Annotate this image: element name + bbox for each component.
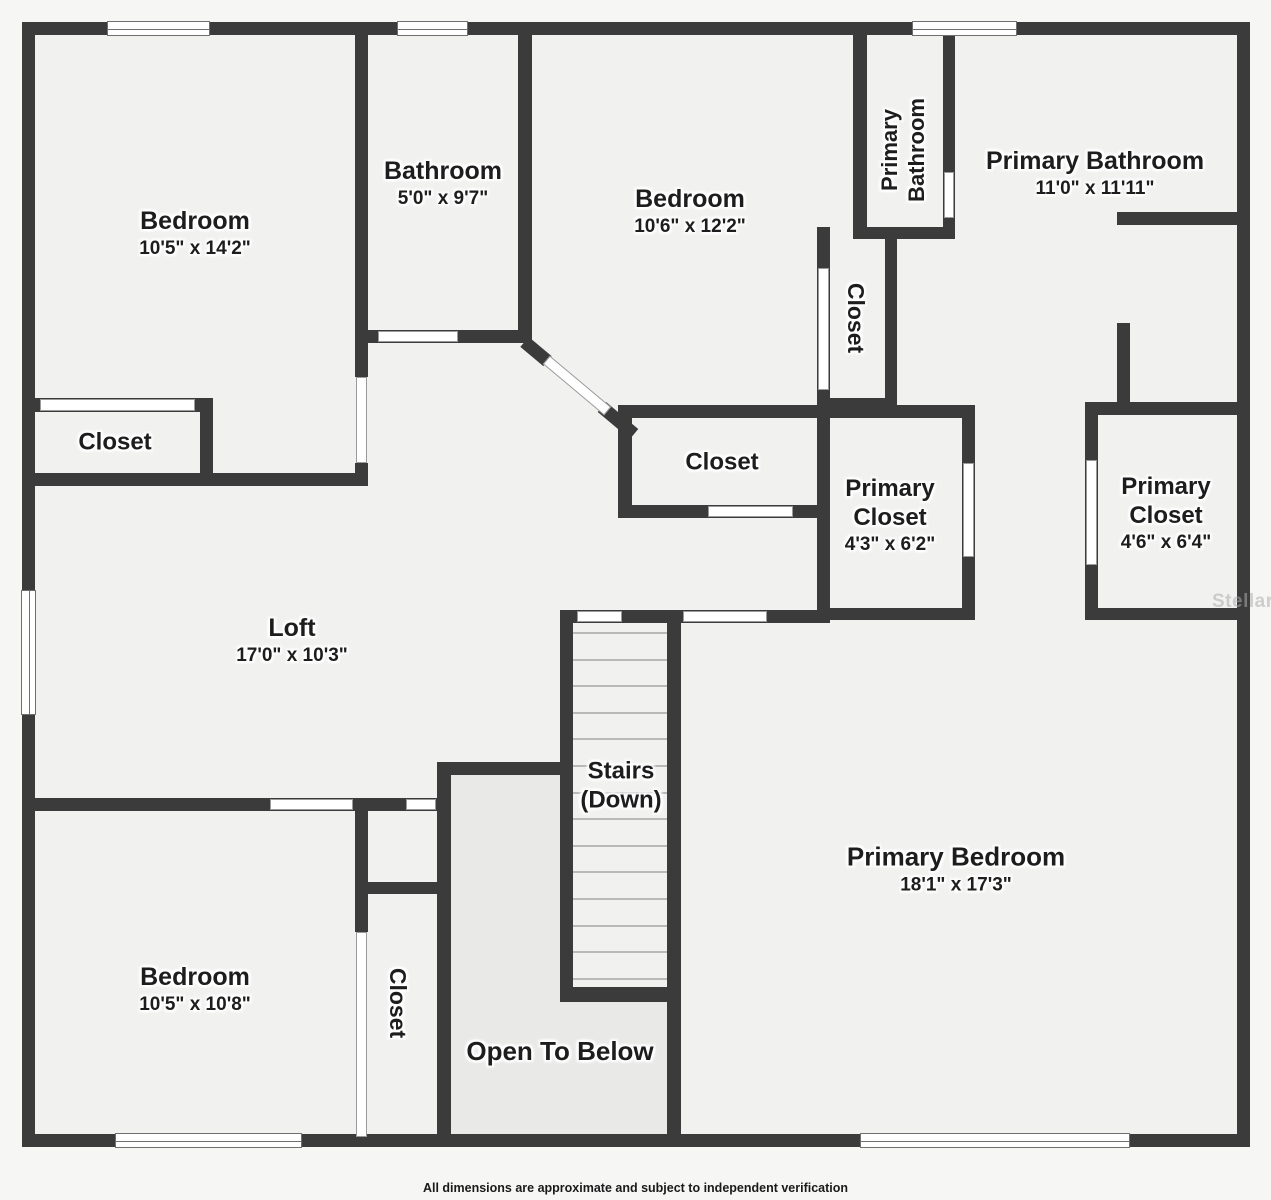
room-label-line: Primary: [845, 474, 935, 503]
wall: [560, 987, 680, 1002]
room-label-line: 10'6" x 12'2": [634, 215, 746, 238]
room-label-open-to-below: Open To Below: [466, 1036, 653, 1068]
room-label-primary-closet-1: PrimaryCloset4'3" x 6'2": [845, 474, 935, 556]
wall: [437, 762, 451, 1134]
wall: [1117, 323, 1130, 415]
stair-tread: [573, 898, 667, 900]
stair-tread: [573, 712, 667, 714]
room-label-line: Stairs: [580, 757, 661, 786]
door-opening: [40, 399, 195, 411]
open-to-below-area: [451, 775, 560, 1134]
wall: [853, 227, 955, 239]
wall: [1237, 22, 1250, 1147]
window-pane-line: [913, 29, 1016, 30]
wall: [518, 35, 532, 343]
room-label-line: Closet: [384, 968, 412, 1038]
wall: [355, 811, 368, 932]
wall: [22, 798, 451, 811]
room-label-line: Bathroom: [904, 98, 931, 202]
door-opening: [683, 611, 767, 622]
room-label-line: Closet: [1121, 501, 1211, 530]
stair-tread: [573, 659, 667, 661]
room-label-line: Bedroom: [634, 184, 746, 215]
window-pane-line: [116, 1141, 301, 1142]
room-label-line: (Down): [580, 786, 661, 815]
door-opening: [963, 463, 974, 557]
door-opening: [356, 932, 367, 1137]
room-label-line: Closet: [842, 283, 870, 353]
room-label-line: Closet: [685, 447, 758, 476]
room-label-primary-closet-2: PrimaryCloset4'6" x 6'4": [1121, 472, 1211, 554]
stair-tread: [573, 925, 667, 927]
floorplan-screenshot: Bedroom10'5" x 14'2"Bathroom5'0" x 9'7"B…: [0, 0, 1271, 1200]
door-opening: [577, 611, 622, 622]
window: [115, 1133, 302, 1148]
room-label-bedroom-1: Bedroom10'5" x 14'2": [139, 206, 251, 260]
room-label-closet-bedroom2: Closet: [842, 283, 870, 353]
room-label-line: Primary: [877, 98, 904, 202]
wall: [1085, 402, 1250, 415]
stair-tread: [573, 951, 667, 953]
stair-tread: [573, 871, 667, 873]
room-label-line: 4'6" x 6'4": [1121, 531, 1211, 554]
door-opening: [378, 331, 458, 342]
wall: [355, 882, 449, 894]
room-label-line: Open To Below: [466, 1036, 653, 1068]
room-label-primary-bedroom: Primary Bedroom18'1" x 17'3": [847, 842, 1065, 897]
room-label-closet-left: Closet: [78, 427, 151, 456]
door-opening: [270, 799, 353, 810]
room-label-line: 10'5" x 14'2": [139, 237, 251, 260]
wall: [618, 405, 830, 418]
window: [912, 21, 1017, 36]
wall: [22, 22, 35, 1147]
footer-disclaimer: All dimensions are approximate and subje…: [0, 1181, 1271, 1195]
room-label-closet-bottom: Closet: [384, 968, 412, 1038]
window: [860, 1133, 1130, 1148]
room-label-line: 10'5" x 10'8": [139, 993, 251, 1016]
window: [21, 590, 36, 715]
open-to-below-area: [560, 1002, 667, 1134]
room-label-line: 18'1" x 17'3": [847, 873, 1065, 896]
room-label-bedroom-2: Bedroom10'6" x 12'2": [634, 184, 746, 238]
room-label-line: Bedroom: [139, 962, 251, 993]
window: [107, 21, 210, 36]
room-label-primary-bathroom-wc: PrimaryBathroom: [877, 98, 931, 202]
room-label-line: Primary: [1121, 472, 1211, 501]
wall: [885, 227, 897, 410]
window-pane-line: [861, 1141, 1129, 1142]
room-label-line: 17'0" x 10'3": [236, 644, 348, 667]
wall: [1117, 212, 1250, 225]
room-label-line: Closet: [78, 427, 151, 456]
room-label-closet-middle: Closet: [685, 447, 758, 476]
stair-tread: [573, 845, 667, 847]
room-label-line: Primary Bathroom: [986, 146, 1204, 177]
room-label-line: Closet: [845, 503, 935, 532]
wall: [853, 35, 867, 227]
watermark: StellarMLS: [1212, 591, 1271, 613]
window: [397, 21, 468, 36]
stair-tread: [573, 738, 667, 740]
room-label-line: 11'0" x 11'11": [986, 177, 1204, 200]
room-label-loft: Loft17'0" x 10'3": [236, 613, 348, 667]
stair-tread: [573, 818, 667, 820]
door-opening: [356, 377, 367, 463]
room-label-line: Loft: [236, 613, 348, 644]
door-opening: [406, 799, 436, 810]
door-opening: [944, 172, 954, 218]
door-opening: [1086, 460, 1097, 565]
room-label-line: 4'3" x 6'2": [845, 533, 935, 556]
window-pane-line: [108, 29, 209, 30]
window-pane-line: [29, 591, 30, 714]
stair-tread: [573, 632, 667, 634]
wall: [355, 35, 368, 377]
room-label-line: Bedroom: [139, 206, 251, 237]
wall: [22, 473, 368, 486]
room-label-line: 5'0" x 9'7": [384, 187, 502, 210]
stair-tread: [573, 685, 667, 687]
window-pane-line: [398, 29, 467, 30]
door-opening: [818, 268, 829, 390]
door-opening: [708, 506, 793, 517]
room-label-stairs: Stairs(Down): [580, 757, 661, 816]
wall: [817, 405, 975, 418]
wall: [667, 610, 681, 1134]
room-label-bedroom-3: Bedroom10'5" x 10'8": [139, 962, 251, 1016]
room-label-primary-bathroom: Primary Bathroom11'0" x 11'11": [986, 146, 1204, 200]
wall: [560, 610, 573, 1002]
room-label-line: Primary Bedroom: [847, 842, 1065, 874]
stair-tread: [573, 978, 667, 980]
wall: [817, 608, 975, 620]
room-label-line: Bathroom: [384, 156, 502, 187]
room-label-bathroom: Bathroom5'0" x 9'7": [384, 156, 502, 210]
wall: [437, 762, 573, 775]
